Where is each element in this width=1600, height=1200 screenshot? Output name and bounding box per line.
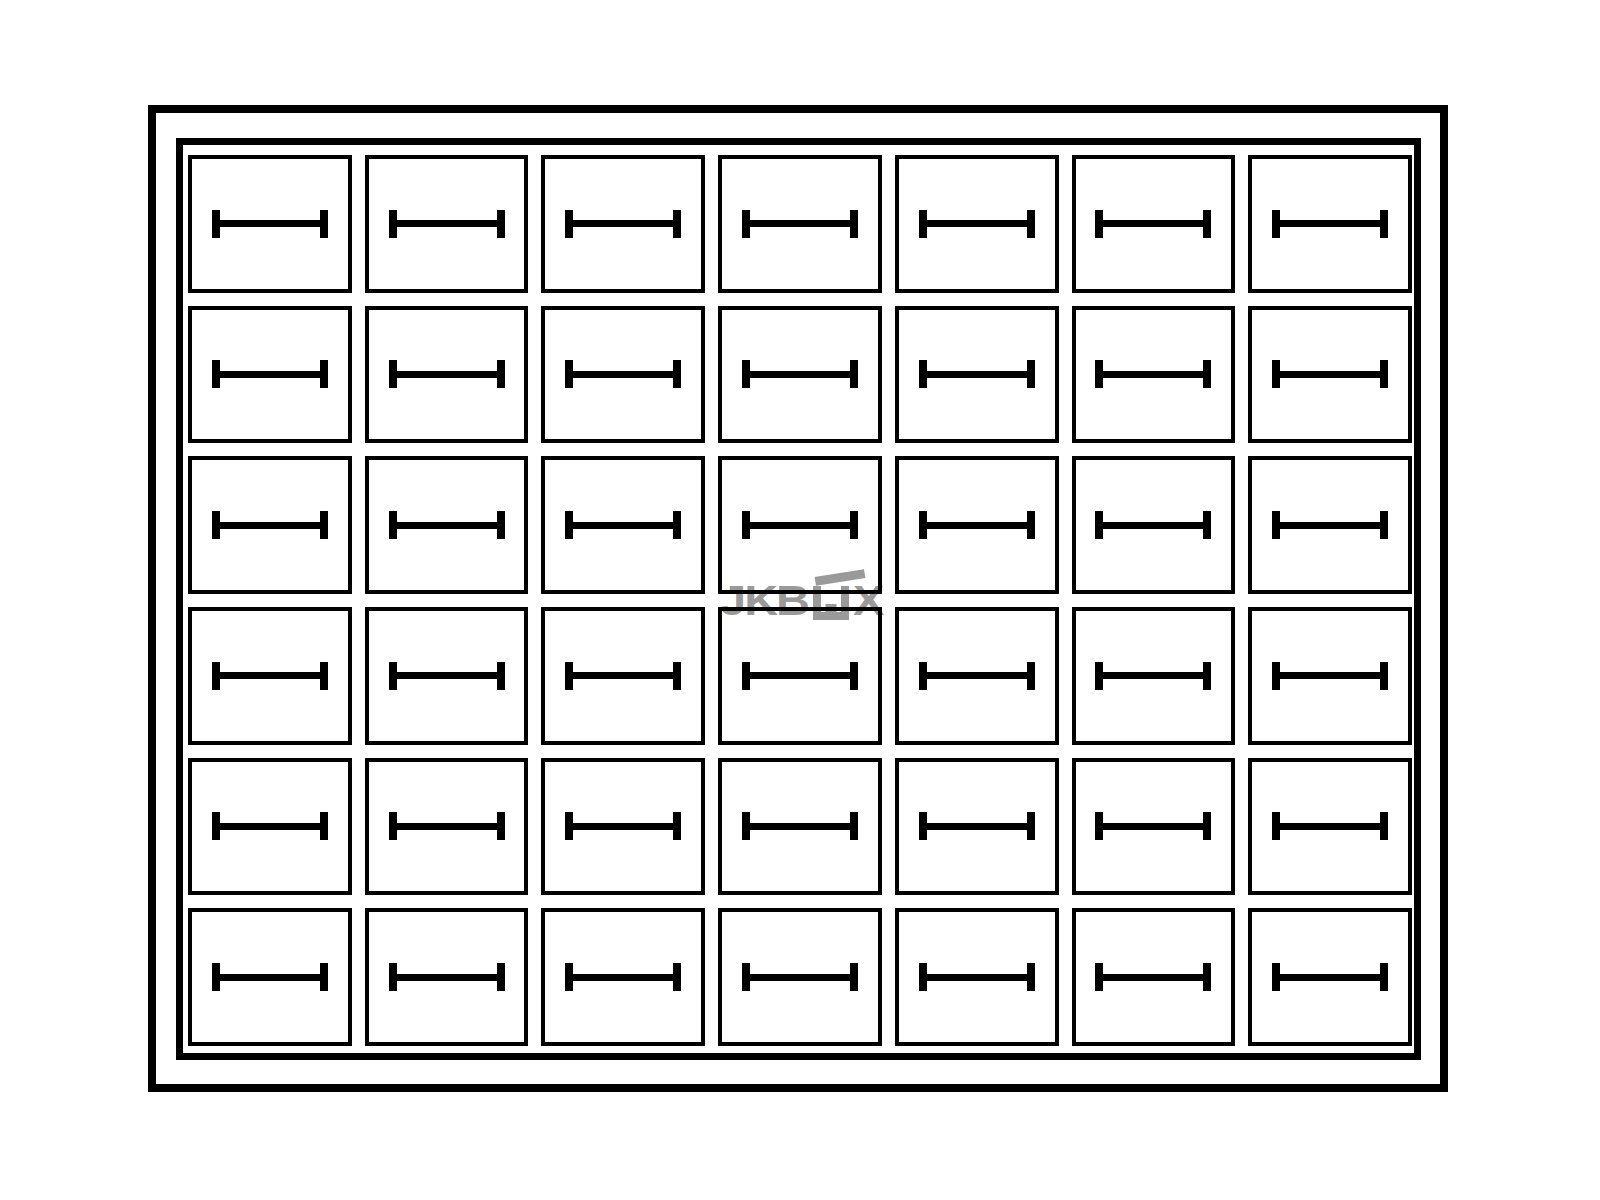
- handle-end-cap: [1095, 812, 1103, 840]
- handle-end-cap: [565, 662, 573, 690]
- handle-bar: [573, 672, 673, 679]
- handle-end-cap: [497, 360, 505, 388]
- handle-end-cap: [1203, 360, 1211, 388]
- compartment-cell: [541, 607, 705, 745]
- handle-end-cap: [742, 511, 750, 539]
- drawer-handle-icon: [212, 210, 328, 238]
- handle-bar: [1103, 371, 1203, 378]
- handle-end-cap: [1095, 963, 1103, 991]
- handle-end-cap: [850, 511, 858, 539]
- compartment-cell: [895, 758, 1059, 896]
- handle-end-cap: [1203, 812, 1211, 840]
- handle-bar: [397, 974, 497, 981]
- handle-end-cap: [1272, 812, 1280, 840]
- compartment-cell: [895, 456, 1059, 594]
- handle-bar: [397, 371, 497, 378]
- handle-end-cap: [673, 662, 681, 690]
- compartment-cell: [541, 908, 705, 1046]
- handle-bar: [573, 823, 673, 830]
- handle-end-cap: [565, 812, 573, 840]
- handle-bar: [573, 220, 673, 227]
- handle-bar: [927, 220, 1027, 227]
- handle-end-cap: [919, 662, 927, 690]
- compartment-cell: [1072, 155, 1236, 293]
- drawer-handle-icon: [1095, 662, 1211, 690]
- handle-end-cap: [919, 210, 927, 238]
- handle-bar: [397, 220, 497, 227]
- handle-end-cap: [850, 360, 858, 388]
- handle-end-cap: [389, 662, 397, 690]
- drawer-handle-icon: [565, 360, 681, 388]
- handle-end-cap: [320, 963, 328, 991]
- handle-end-cap: [850, 210, 858, 238]
- handle-end-cap: [565, 210, 573, 238]
- handle-end-cap: [1027, 662, 1035, 690]
- drawer-handle-icon: [1272, 210, 1388, 238]
- drawer-handle-icon: [565, 812, 681, 840]
- handle-end-cap: [919, 360, 927, 388]
- handle-bar: [1103, 974, 1203, 981]
- handle-end-cap: [1272, 210, 1280, 238]
- handle-end-cap: [1272, 963, 1280, 991]
- handle-end-cap: [1027, 511, 1035, 539]
- handle-end-cap: [320, 511, 328, 539]
- handle-bar: [220, 220, 320, 227]
- handle-end-cap: [673, 812, 681, 840]
- handle-bar: [573, 522, 673, 529]
- handle-end-cap: [673, 210, 681, 238]
- drawer-handle-icon: [1095, 511, 1211, 539]
- drawer-handle-icon: [212, 963, 328, 991]
- handle-end-cap: [1272, 360, 1280, 388]
- compartment-grid: [188, 155, 1412, 1046]
- handle-end-cap: [1272, 662, 1280, 690]
- compartment-cell: [718, 456, 882, 594]
- drawer-handle-icon: [919, 812, 1035, 840]
- drawer-handle-icon: [742, 963, 858, 991]
- handle-end-cap: [1272, 511, 1280, 539]
- handle-end-cap: [497, 511, 505, 539]
- handle-bar: [397, 522, 497, 529]
- compartment-cell: [1248, 306, 1412, 444]
- handle-end-cap: [1380, 360, 1388, 388]
- handle-end-cap: [1095, 511, 1103, 539]
- handle-bar: [1280, 672, 1380, 679]
- drawer-handle-icon: [919, 210, 1035, 238]
- handle-end-cap: [1095, 662, 1103, 690]
- handle-bar: [1103, 522, 1203, 529]
- handle-bar: [750, 672, 850, 679]
- handle-bar: [1280, 220, 1380, 227]
- handle-end-cap: [212, 812, 220, 840]
- compartment-cell: [1072, 306, 1236, 444]
- handle-end-cap: [1027, 963, 1035, 991]
- handle-end-cap: [497, 210, 505, 238]
- handle-end-cap: [1095, 210, 1103, 238]
- compartment-cell: [718, 306, 882, 444]
- handle-bar: [750, 220, 850, 227]
- handle-bar: [927, 371, 1027, 378]
- compartment-cell: [188, 456, 352, 594]
- handle-end-cap: [497, 963, 505, 991]
- compartment-cell: [718, 155, 882, 293]
- compartment-cell: [718, 908, 882, 1046]
- handle-bar: [1280, 823, 1380, 830]
- handle-bar: [220, 522, 320, 529]
- inner-case-outline: [176, 138, 1421, 1060]
- handle-end-cap: [742, 210, 750, 238]
- handle-end-cap: [1203, 511, 1211, 539]
- handle-bar: [220, 823, 320, 830]
- drawer-handle-icon: [565, 210, 681, 238]
- compartment-cell: [895, 908, 1059, 1046]
- compartment-cell: [365, 155, 529, 293]
- handle-end-cap: [919, 963, 927, 991]
- compartment-cell: [1248, 155, 1412, 293]
- compartment-cell: [188, 155, 352, 293]
- drawer-handle-icon: [565, 511, 681, 539]
- compartment-cell: [718, 607, 882, 745]
- handle-end-cap: [1027, 812, 1035, 840]
- handle-end-cap: [673, 511, 681, 539]
- handle-end-cap: [389, 511, 397, 539]
- handle-end-cap: [742, 360, 750, 388]
- drawer-handle-icon: [212, 662, 328, 690]
- handle-end-cap: [320, 210, 328, 238]
- handle-end-cap: [320, 662, 328, 690]
- handle-bar: [750, 522, 850, 529]
- handle-end-cap: [389, 963, 397, 991]
- compartment-cell: [365, 456, 529, 594]
- drawer-handle-icon: [212, 812, 328, 840]
- handle-end-cap: [212, 662, 220, 690]
- compartment-cell: [365, 758, 529, 896]
- drawer-handle-icon: [742, 360, 858, 388]
- compartment-cell: [1072, 908, 1236, 1046]
- handle-end-cap: [389, 210, 397, 238]
- drawer-handle-icon: [1095, 360, 1211, 388]
- handle-bar: [927, 522, 1027, 529]
- handle-end-cap: [1203, 662, 1211, 690]
- compartment-cell: [1248, 908, 1412, 1046]
- handle-bar: [927, 823, 1027, 830]
- compartment-cell: [1072, 758, 1236, 896]
- diagram-canvas: JKB X: [0, 0, 1600, 1200]
- drawer-handle-icon: [919, 662, 1035, 690]
- handle-bar: [573, 974, 673, 981]
- drawer-handle-icon: [1272, 511, 1388, 539]
- handle-bar: [927, 974, 1027, 981]
- handle-end-cap: [742, 662, 750, 690]
- drawer-handle-icon: [1272, 812, 1388, 840]
- drawer-handle-icon: [212, 511, 328, 539]
- handle-end-cap: [497, 812, 505, 840]
- compartment-cell: [541, 456, 705, 594]
- handle-end-cap: [1027, 360, 1035, 388]
- handle-end-cap: [673, 963, 681, 991]
- handle-bar: [1103, 672, 1203, 679]
- compartment-cell: [895, 607, 1059, 745]
- handle-end-cap: [850, 963, 858, 991]
- compartment-cell: [188, 758, 352, 896]
- outer-case-outline: [148, 105, 1448, 1092]
- handle-end-cap: [742, 812, 750, 840]
- handle-bar: [1280, 522, 1380, 529]
- compartment-cell: [895, 155, 1059, 293]
- handle-bar: [573, 371, 673, 378]
- handle-bar: [397, 823, 497, 830]
- drawer-handle-icon: [1272, 662, 1388, 690]
- handle-end-cap: [389, 360, 397, 388]
- drawer-handle-icon: [389, 812, 505, 840]
- drawer-handle-icon: [1095, 963, 1211, 991]
- compartment-cell: [1072, 456, 1236, 594]
- compartment-cell: [541, 758, 705, 896]
- compartment-cell: [1248, 758, 1412, 896]
- drawer-handle-icon: [1095, 812, 1211, 840]
- compartment-cell: [1072, 607, 1236, 745]
- drawer-handle-icon: [389, 210, 505, 238]
- handle-bar: [750, 823, 850, 830]
- handle-end-cap: [1380, 662, 1388, 690]
- compartment-cell: [365, 908, 529, 1046]
- compartment-cell: [365, 607, 529, 745]
- compartment-cell: [188, 607, 352, 745]
- handle-end-cap: [565, 511, 573, 539]
- handle-bar: [1280, 371, 1380, 378]
- drawer-handle-icon: [389, 511, 505, 539]
- handle-end-cap: [212, 511, 220, 539]
- compartment-cell: [188, 306, 352, 444]
- compartment-cell: [1248, 456, 1412, 594]
- compartment-cell: [718, 758, 882, 896]
- drawer-handle-icon: [389, 662, 505, 690]
- drawer-handle-icon: [742, 662, 858, 690]
- drawer-handle-icon: [919, 511, 1035, 539]
- handle-end-cap: [1027, 210, 1035, 238]
- drawer-handle-icon: [742, 511, 858, 539]
- handle-bar: [927, 672, 1027, 679]
- handle-end-cap: [565, 963, 573, 991]
- handle-end-cap: [919, 812, 927, 840]
- compartment-cell: [1248, 607, 1412, 745]
- drawer-handle-icon: [1095, 210, 1211, 238]
- handle-end-cap: [320, 360, 328, 388]
- drawer-handle-icon: [212, 360, 328, 388]
- handle-end-cap: [850, 662, 858, 690]
- handle-end-cap: [850, 812, 858, 840]
- handle-bar: [220, 371, 320, 378]
- handle-end-cap: [1203, 210, 1211, 238]
- drawer-handle-icon: [919, 963, 1035, 991]
- handle-bar: [220, 672, 320, 679]
- handle-bar: [750, 974, 850, 981]
- drawer-handle-icon: [565, 963, 681, 991]
- handle-end-cap: [673, 360, 681, 388]
- handle-bar: [1103, 823, 1203, 830]
- compartment-cell: [188, 908, 352, 1046]
- handle-bar: [750, 371, 850, 378]
- compartment-cell: [895, 306, 1059, 444]
- handle-end-cap: [742, 963, 750, 991]
- handle-end-cap: [1095, 360, 1103, 388]
- drawer-handle-icon: [389, 963, 505, 991]
- handle-end-cap: [1380, 812, 1388, 840]
- handle-end-cap: [1380, 511, 1388, 539]
- handle-end-cap: [212, 963, 220, 991]
- handle-end-cap: [919, 511, 927, 539]
- compartment-cell: [541, 155, 705, 293]
- drawer-handle-icon: [565, 662, 681, 690]
- compartment-cell: [541, 306, 705, 444]
- drawer-handle-icon: [389, 360, 505, 388]
- handle-bar: [1280, 974, 1380, 981]
- handle-end-cap: [497, 662, 505, 690]
- handle-end-cap: [320, 812, 328, 840]
- handle-end-cap: [1203, 963, 1211, 991]
- handle-bar: [1103, 220, 1203, 227]
- drawer-handle-icon: [1272, 963, 1388, 991]
- handle-end-cap: [1380, 210, 1388, 238]
- drawer-handle-icon: [1272, 360, 1388, 388]
- drawer-handle-icon: [742, 210, 858, 238]
- handle-end-cap: [389, 812, 397, 840]
- compartment-cell: [365, 306, 529, 444]
- drawer-handle-icon: [742, 812, 858, 840]
- handle-end-cap: [565, 360, 573, 388]
- drawer-handle-icon: [919, 360, 1035, 388]
- handle-end-cap: [212, 210, 220, 238]
- handle-end-cap: [1380, 963, 1388, 991]
- handle-end-cap: [212, 360, 220, 388]
- handle-bar: [397, 672, 497, 679]
- handle-bar: [220, 974, 320, 981]
